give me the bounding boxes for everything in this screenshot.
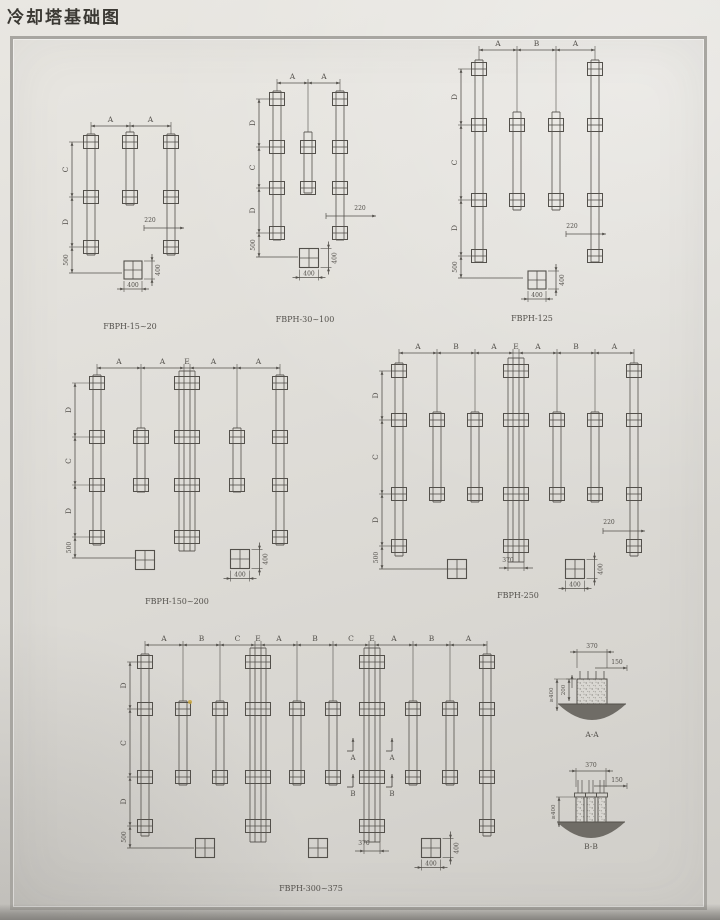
axis-spacing-label: C [348, 634, 354, 643]
dim-label: 220 [144, 217, 156, 224]
plan-label: FBPH-15~20 [103, 322, 157, 331]
dim-label: 500 [121, 831, 128, 843]
concrete-pier [598, 797, 606, 822]
axis-spacing-label: A [534, 342, 541, 351]
axis-spacing-label: A [255, 357, 262, 366]
axis-spacing-label: D [119, 798, 128, 804]
dim-label: 150 [611, 777, 623, 784]
anchor-plate [575, 793, 586, 797]
axis-spacing-label: D [450, 225, 459, 231]
axis-spacing-label: C [64, 458, 73, 464]
axis-spacing-label: A [210, 357, 217, 366]
dim-label: 370 [358, 840, 370, 847]
axis-spacing-label: A [611, 342, 618, 351]
axis-spacing-label: D [64, 407, 73, 413]
axis-spacing-label: B [453, 342, 459, 351]
dim-label: 400 [263, 553, 270, 565]
dim-label: 400 [425, 861, 437, 868]
dim-label: 400 [303, 271, 315, 278]
dim-label: 220 [603, 519, 615, 526]
foundation-plan-fbph-30-100: AADCD500220400400FBPH-30~100 [238, 58, 386, 330]
plan-label: FBPH-125 [511, 314, 553, 323]
plan-label: FBPH-30~100 [276, 315, 335, 324]
axis-spacing-label: C [248, 164, 257, 170]
axis-spacing-label: D [371, 517, 380, 523]
dim-label: 400 [569, 582, 581, 589]
axis-spacing-label: A [147, 115, 154, 124]
dim-label: 400 [598, 563, 605, 575]
foundation-plan-fbph-125: ABADCD500220400400FBPH-125 [428, 28, 636, 330]
section-cut-label: A [349, 754, 356, 762]
axis-spacing-label: B [199, 634, 205, 643]
dim-label: 400 [531, 292, 543, 299]
axis-spacing-label: A [115, 357, 122, 366]
plan-label: FBPH-300~375 [279, 884, 343, 893]
axis-spacing-label: C [371, 454, 380, 460]
section-cut-label: B [350, 790, 355, 798]
dim-label: 400 [155, 264, 162, 276]
section-cut-label: B [389, 790, 394, 798]
cooling-tower-foundation-drawing: AACD500220400400FBPH-15~20AADCD500220400… [0, 0, 720, 920]
ground-hatch [557, 822, 625, 838]
dim-label: 370 [502, 557, 514, 564]
anchor-plate [586, 793, 597, 797]
axis-spacing-label: A [159, 357, 166, 366]
axis-spacing-label: A [275, 634, 282, 643]
axis-spacing-label: D [248, 207, 257, 213]
axis-spacing-label: C [61, 166, 70, 172]
dim-label: 200 [561, 684, 567, 695]
dim-label: 400 [234, 572, 246, 579]
dim-label: 400 [559, 274, 566, 286]
dim-label: 220 [354, 205, 366, 212]
axis-spacing-label: E [513, 342, 518, 351]
plan-label: FBPH-150~200 [145, 597, 209, 606]
axis-spacing-label: C [119, 740, 128, 746]
dim-label: 400 [127, 282, 139, 289]
foundation-plan-fbph-150-200: AAEAADCD500400400FBPH-150~200 [58, 338, 310, 614]
axis-spacing-label: D [248, 120, 257, 126]
dim-label: 500 [66, 542, 73, 554]
plan-label: FBPH-250 [497, 591, 539, 600]
concrete-pier [587, 797, 595, 822]
anchor-plate [597, 793, 608, 797]
dim-label: ≥400 [551, 804, 557, 820]
axis-spacing-label: A [494, 39, 501, 48]
dim-label: 400 [332, 252, 339, 264]
section-label: A-A [584, 730, 599, 739]
axis-spacing-label: B [312, 634, 318, 643]
concrete-pier [576, 797, 584, 822]
axis-spacing-label: B [534, 39, 540, 48]
axis-spacing-label: D [119, 682, 128, 688]
axis-spacing-label: A [107, 115, 114, 124]
axis-spacing-label: B [429, 634, 435, 643]
axis-spacing-label: A [465, 634, 472, 643]
axis-spacing-label: D [371, 392, 380, 398]
axis-spacing-label: A [414, 342, 421, 351]
dim-label: ≥400 [549, 687, 555, 703]
foundation-plan-fbph-300-375: ABCEABCEABADCD500370AABB400400FBPH-300~3… [108, 618, 515, 914]
axis-spacing-label: D [64, 508, 73, 514]
axis-spacing-label: C [450, 159, 459, 165]
axis-spacing-label: A [490, 342, 497, 351]
dim-label: 370 [585, 762, 597, 769]
dim-label: 370 [586, 643, 598, 650]
foundation-plan-fbph-250: ABAEABADCD500220370400400FBPH-250 [358, 328, 662, 620]
axis-spacing-label: A [160, 634, 167, 643]
concrete-cap [577, 679, 607, 704]
axis-spacing-label: E [369, 634, 374, 643]
dim-label: 500 [250, 239, 257, 251]
axis-spacing-label: A [320, 72, 327, 81]
foundation-plan-fbph-15-20: AACD500220400400FBPH-15~20 [58, 100, 200, 336]
axis-spacing-label: B [573, 342, 579, 351]
dim-label: 500 [452, 261, 459, 273]
page-bottom-shadow [0, 904, 720, 920]
axis-spacing-label: A [572, 39, 579, 48]
section-a-a: 370150≥400200A-A [543, 633, 660, 752]
axis-spacing-label: A [390, 634, 397, 643]
axis-spacing-label: C [235, 634, 241, 643]
dim-label: 220 [566, 223, 578, 230]
dim-label: 500 [63, 254, 70, 266]
section-cut-label: A [388, 754, 395, 762]
ground-hatch [558, 704, 626, 720]
axis-spacing-label: D [61, 219, 70, 225]
axis-spacing-label: E [255, 634, 260, 643]
dim-label: 400 [454, 842, 461, 854]
axis-spacing-label: E [184, 357, 189, 366]
dim-label: 500 [373, 552, 380, 564]
section-b-b: 370150≥400B-B [543, 758, 660, 866]
axis-spacing-label: D [450, 94, 459, 100]
section-label: B-B [584, 842, 598, 851]
axis-spacing-label: A [289, 72, 296, 81]
dim-label: 150 [611, 659, 623, 666]
paper-speck [188, 700, 192, 704]
